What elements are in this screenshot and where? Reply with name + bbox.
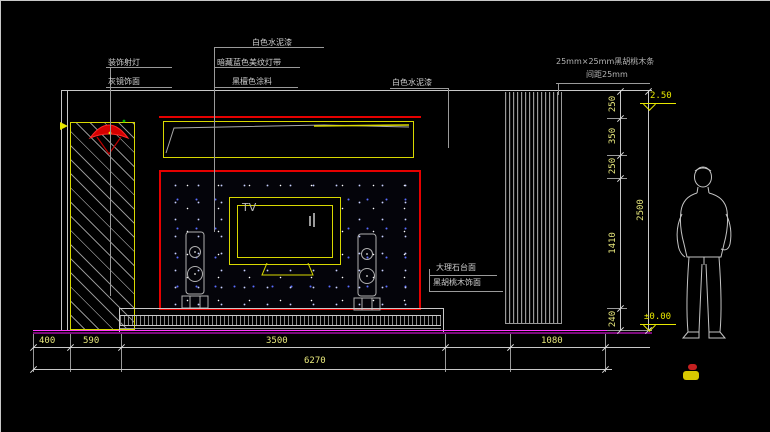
note-underline [390, 88, 449, 89]
dim-line-right-inner [620, 91, 621, 331]
note-slats-spec: 25mm×25mm黑胡桃木条 [556, 57, 654, 66]
note-underline [106, 87, 172, 88]
ext-line [607, 308, 627, 309]
dim-6270: 6270 [304, 356, 326, 366]
wood-slat-panel [505, 92, 562, 324]
viewport-top-border [0, 0, 770, 1]
ext-line [510, 334, 511, 372]
spotlight-icon [86, 112, 132, 156]
human-figure [663, 164, 747, 342]
viewport-left-border [0, 0, 1, 432]
speaker-right [352, 232, 382, 312]
note-slats-spacing: 间距25mm [586, 70, 628, 79]
ext-line [33, 334, 34, 372]
dim-250-b: 250 [608, 158, 618, 174]
band-flap-line [164, 122, 411, 155]
leader-right-note [448, 88, 449, 148]
note-underline [214, 67, 300, 68]
ext-line [607, 118, 627, 119]
level-top: 2.50 [650, 91, 672, 101]
tv-label: TV [242, 203, 256, 212]
dim-400: 400 [39, 336, 55, 346]
tv-speaker-glyph [309, 216, 311, 226]
dim-1410: 1410 [608, 232, 618, 254]
leader-cabinet-notes [429, 269, 430, 292]
ext-line [607, 178, 627, 179]
leader-left-notes [110, 67, 111, 296]
cabinet-hatch-band [120, 315, 441, 326]
ext-line [607, 330, 652, 331]
note-underline [106, 67, 172, 68]
note-underline [214, 47, 324, 48]
dim-line-bottom-2 [33, 369, 612, 370]
cad-elevation-canvas: TV 装饰射灯 灰镜饰面 白色水泥漆 暗藏蓝色美纹灯带 黑檀色涂料 白色水泥漆 [0, 0, 770, 432]
speaker-left [180, 228, 210, 312]
ext-line [607, 155, 627, 156]
note-mirror: 灰镜饰面 [108, 77, 140, 86]
band-red-line [159, 116, 421, 118]
dim-2500: 2500 [636, 199, 646, 221]
dim-3500: 3500 [266, 336, 288, 346]
dim-250-a: 250 [608, 96, 618, 112]
tv-stand [255, 263, 325, 277]
note-underline [429, 291, 503, 292]
cabinet-line [120, 328, 441, 329]
arrow-marker-icon [60, 122, 68, 130]
note-white-paint-top: 白色水泥漆 [252, 38, 292, 47]
dim-line-bottom-1 [33, 347, 650, 348]
ext-line [70, 334, 71, 372]
dim-590: 590 [83, 336, 99, 346]
floor-line-purple [33, 332, 652, 334]
note-walnut-veneer: 黑胡桃木饰面 [433, 278, 481, 287]
note-dark-paint: 黑檀色涂料 [232, 77, 272, 86]
note-white-paint-right: 白色水泥漆 [392, 78, 432, 87]
note-marble-top: 大理石台面 [436, 263, 476, 272]
leader-slats-note [558, 83, 559, 95]
dim-350: 350 [608, 128, 618, 144]
note-spotlight: 装饰射灯 [108, 58, 140, 67]
stamp-yellow-icon [683, 371, 699, 380]
floor-line-magenta [33, 330, 652, 331]
leader-center-notes [214, 47, 215, 232]
ext-line [121, 334, 122, 372]
note-hidden-light: 暗藏蓝色美纹灯带 [217, 58, 281, 67]
dim-240: 240 [608, 311, 618, 327]
dim-1080: 1080 [541, 336, 563, 346]
note-underline [214, 87, 298, 88]
ceiling-line [61, 90, 652, 91]
dim-line-right-outer [648, 91, 649, 331]
ext-line [605, 334, 606, 372]
tv-speaker-glyph [313, 213, 315, 227]
stamp-red-icon [688, 364, 697, 370]
note-underline [429, 275, 497, 276]
note-underline [556, 83, 650, 84]
ext-line [445, 334, 446, 372]
lightbox-band [163, 121, 414, 158]
